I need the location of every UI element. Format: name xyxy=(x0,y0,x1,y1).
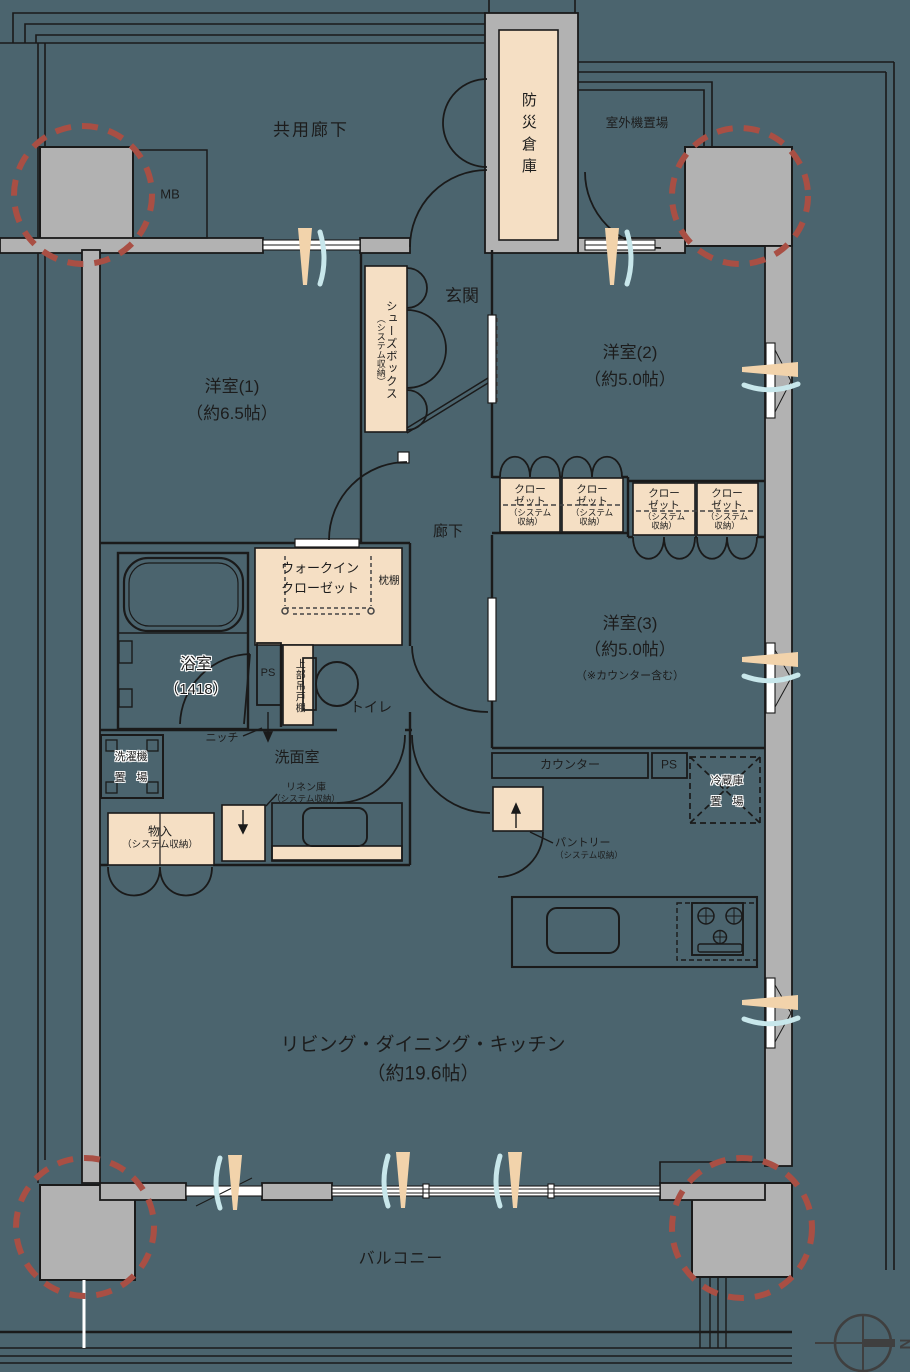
label-wic: ウォークインクローゼット xyxy=(281,559,359,598)
label-closet-2: クローゼット （システム収納） xyxy=(571,485,613,528)
label-common-corridor: 共用廊下 xyxy=(273,119,349,144)
label-room1: 洋室(1)（約6.5帖） xyxy=(186,373,278,427)
label-storage-closet: 物入（システム収納） xyxy=(122,824,198,853)
vanity-lower-strip xyxy=(272,846,402,860)
shoebox-door-arcs xyxy=(407,268,446,430)
label-disaster-storage: 防災倉庫 xyxy=(517,92,539,180)
label-ps-kitchen: PS xyxy=(661,756,677,773)
label-closet-4: クローゼット （システム収納） xyxy=(706,489,748,532)
label-closet-1: クローゼット （システム収納） xyxy=(509,485,551,528)
room3-closet-bifold xyxy=(633,537,757,559)
label-entrance: 玄関 xyxy=(445,285,479,310)
storage-closet-doors xyxy=(108,867,212,896)
label-balcony: バルコニー xyxy=(359,1247,444,1270)
floorplan-drawing: N xyxy=(0,0,910,1372)
label-bathroom: 浴室（1418） xyxy=(164,653,227,701)
room1-door-arc xyxy=(329,462,407,540)
label-toilet: トイレ xyxy=(350,697,392,717)
disaster-storage-door-arcs xyxy=(443,79,487,167)
columns xyxy=(40,147,792,1280)
washroom-door-arc xyxy=(337,735,405,803)
label-room2: 洋室(2)（約5.0帖） xyxy=(584,339,676,393)
vanity-bowl-icon xyxy=(303,808,367,846)
label-shoe-box: シューズボックス （システム収納） xyxy=(375,300,397,400)
floorplan: N 共用廊下 MB 防災倉庫 室外機置場 玄関 シューズボックス （システム収納… xyxy=(0,0,910,1372)
ldk-door-arc xyxy=(412,735,490,813)
label-closet-3: クローゼット （システム収納） xyxy=(643,489,685,532)
pantry-door-arc xyxy=(498,832,543,877)
label-upper-cabinet: 上部吊戸棚 xyxy=(291,659,306,714)
label-room3: 洋室(3)（約5.0帖） （※カウンター含む） xyxy=(576,611,684,685)
label-linen: リネン庫（システム収納） xyxy=(272,782,340,803)
label-ldk: リビング・ダイニング・キッチン（約19.6帖） xyxy=(280,1032,565,1089)
label-niche: ニッチ xyxy=(206,731,239,747)
label-washroom: 洗面室 xyxy=(274,747,319,769)
grill-icon xyxy=(698,944,742,952)
room2-closet-bifold xyxy=(500,457,622,477)
column-top-left xyxy=(40,147,133,243)
label-counter: カウンター xyxy=(540,756,600,773)
balcony-rail-lines xyxy=(0,1277,792,1363)
label-laundry: 洗濯機置 場 xyxy=(115,747,148,789)
label-fridge: 冷蔵庫置 場 xyxy=(711,771,744,813)
label-outdoor-unit: 室外機置場 xyxy=(606,114,669,132)
label-hallway: 廊下 xyxy=(433,521,463,543)
toilet-door-arc xyxy=(412,646,488,712)
column-accent-circles xyxy=(14,126,812,1298)
column-top-right xyxy=(685,147,792,246)
label-pantry: パントリー（システム収納） xyxy=(555,836,623,861)
compass-north-label: N xyxy=(896,1339,910,1350)
label-meter-box: MB xyxy=(160,186,180,205)
label-ps-bath: PS xyxy=(261,666,276,682)
entrance-door-arc xyxy=(410,170,487,247)
label-pillow-shelf: 枕棚 xyxy=(379,573,400,588)
kitchen-sink-icon xyxy=(547,908,619,953)
bathtub-icon xyxy=(124,558,243,631)
compass-icon: N xyxy=(815,1315,910,1371)
outdoor-unit-door-arc xyxy=(585,172,661,248)
